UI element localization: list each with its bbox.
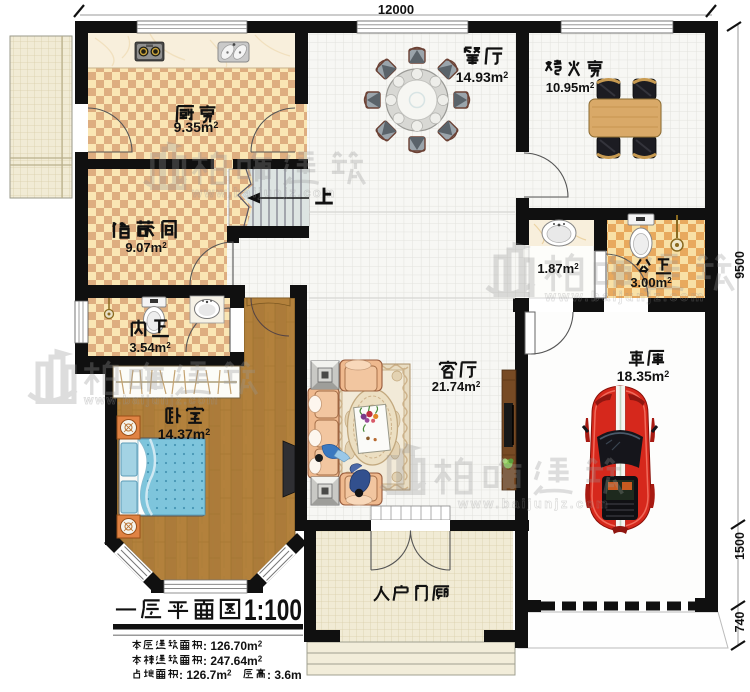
- svg-text:: 247.64m2: : 247.64m2: [203, 654, 263, 668]
- svg-text:www.baijunjz.com: www.baijunjz.com: [457, 496, 610, 511]
- svg-text:9500: 9500: [733, 251, 747, 279]
- svg-text:www.baijunjz.com: www.baijunjz.com: [191, 185, 336, 200]
- svg-text:www.baijunjz.com: www.baijunjz.com: [544, 288, 706, 304]
- svg-text:14.93m2: 14.93m2: [456, 69, 509, 85]
- svg-text:: 3.6m: : 3.6m: [267, 668, 302, 682]
- svg-text:: 126.7m2: : 126.7m2: [179, 668, 232, 682]
- svg-text:: 126.70m2: : 126.70m2: [203, 639, 263, 653]
- svg-text:9.07m2: 9.07m2: [125, 240, 167, 255]
- svg-text:740: 740: [733, 612, 747, 633]
- svg-text:3.54m2: 3.54m2: [129, 340, 171, 355]
- svg-text:14.37m2: 14.37m2: [158, 426, 211, 442]
- svg-text:10.95m2: 10.95m2: [546, 80, 595, 95]
- svg-text:21.74m2: 21.74m2: [432, 379, 481, 394]
- svg-text:1.87m2: 1.87m2: [537, 261, 579, 276]
- svg-text:1:100: 1:100: [244, 594, 302, 627]
- svg-text:18.35m2: 18.35m2: [617, 368, 670, 384]
- svg-text:9.35m2: 9.35m2: [174, 119, 219, 135]
- svg-text:www.baijunjz.com: www.baijunjz.com: [83, 393, 220, 407]
- svg-text:3.00m2: 3.00m2: [630, 275, 672, 290]
- svg-text:12000: 12000: [378, 2, 414, 17]
- svg-text:1500: 1500: [733, 532, 747, 560]
